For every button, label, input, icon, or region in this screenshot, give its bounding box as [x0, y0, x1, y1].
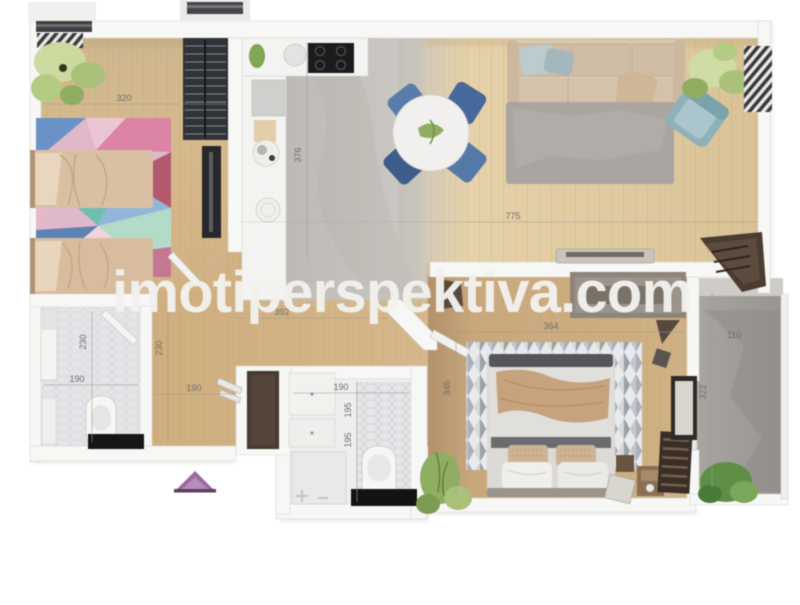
- svg-text:775: 775: [505, 211, 520, 221]
- svg-text:345: 345: [442, 380, 452, 395]
- svg-text:230: 230: [154, 340, 164, 355]
- svg-text:110: 110: [727, 330, 741, 340]
- svg-text:190: 190: [333, 382, 348, 392]
- svg-text:190: 190: [186, 383, 201, 393]
- svg-text:320: 320: [116, 93, 131, 103]
- svg-text:376: 376: [293, 147, 303, 162]
- svg-text:imotiperspektiva.com: imotiperspektiva.com: [112, 260, 692, 325]
- svg-text:195: 195: [343, 402, 353, 417]
- svg-text:195: 195: [343, 432, 353, 447]
- svg-text:322: 322: [698, 384, 708, 399]
- svg-text:230: 230: [78, 334, 88, 349]
- svg-text:190: 190: [69, 374, 84, 384]
